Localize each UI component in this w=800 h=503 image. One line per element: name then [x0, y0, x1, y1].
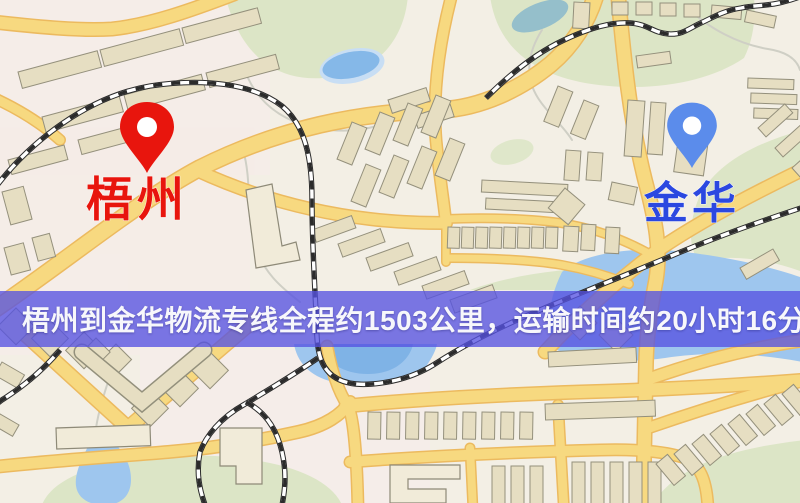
destination-label: 金华: [643, 179, 740, 228]
map-canvas: 梧州 金华: [0, 0, 800, 503]
map-screenshot: 梧州 金华 梧州到金华物流专线全程约1503公里，运输时间约20小时16分钟.: [0, 0, 800, 503]
route-info-banner: 梧州到金华物流专线全程约1503公里，运输时间约20小时16分钟.: [0, 291, 800, 347]
route-info-text: 梧州到金华物流专线全程约1503公里，运输时间约20小时16分钟.: [22, 299, 800, 339]
origin-label: 梧州: [86, 173, 188, 226]
